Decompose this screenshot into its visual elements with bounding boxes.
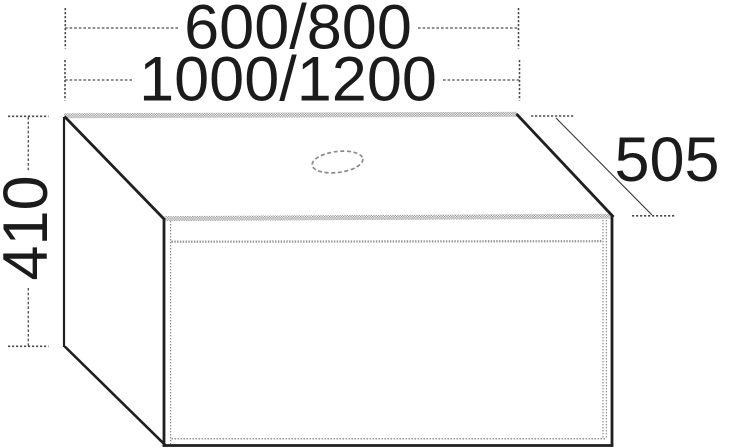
- tap-hole-icon: [311, 148, 364, 175]
- dimension-depth: 505: [531, 116, 720, 216]
- top-right-receding-edge: [517, 114, 614, 217]
- dimension-width-options-2: 1000/1200: [65, 45, 520, 115]
- top-left-receding-edge: [65, 117, 164, 219]
- drawer-top-gap-line: [172, 241, 604, 242]
- dimension-label-width-options-2: 1000/1200: [139, 45, 437, 115]
- cabinet-outline: [64, 114, 614, 447]
- vanity-unit-dimension-drawing: 600/800 1000/1200 410 505: [0, 0, 730, 448]
- dimension-label-height: 410: [0, 175, 61, 280]
- cabinet-hidden-lines: [171, 220, 607, 444]
- top-front-edge-hatched: [164, 216, 613, 218]
- dimension-drawing-canvas: 600/800 1000/1200 410 505: [0, 0, 730, 448]
- top-back-edge-hatched: [64, 114, 517, 115]
- bottom-left-receding-edge: [65, 347, 166, 446]
- dimension-height: 410: [0, 116, 61, 346]
- dimension-label-depth: 505: [614, 125, 719, 195]
